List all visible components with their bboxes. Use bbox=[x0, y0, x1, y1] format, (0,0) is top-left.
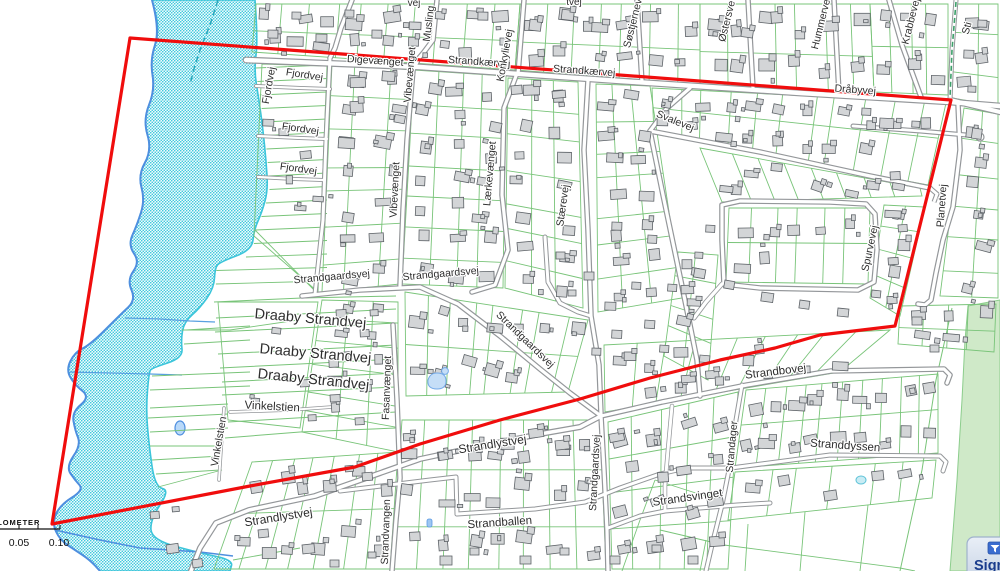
svg-text:KILOMETER: KILOMETER bbox=[0, 518, 40, 527]
svg-text:0.05: 0.05 bbox=[9, 537, 30, 549]
svg-text:tvej: tvej bbox=[566, 0, 582, 8]
svg-text:vej: vej bbox=[408, 0, 421, 9]
svg-text:Fasanvænget: Fasanvænget bbox=[380, 356, 394, 421]
svg-text:0.10: 0.10 bbox=[49, 537, 70, 549]
svg-text:Signa: Signa bbox=[974, 558, 1000, 571]
svg-text:Strandvangen: Strandvangen bbox=[379, 499, 393, 565]
